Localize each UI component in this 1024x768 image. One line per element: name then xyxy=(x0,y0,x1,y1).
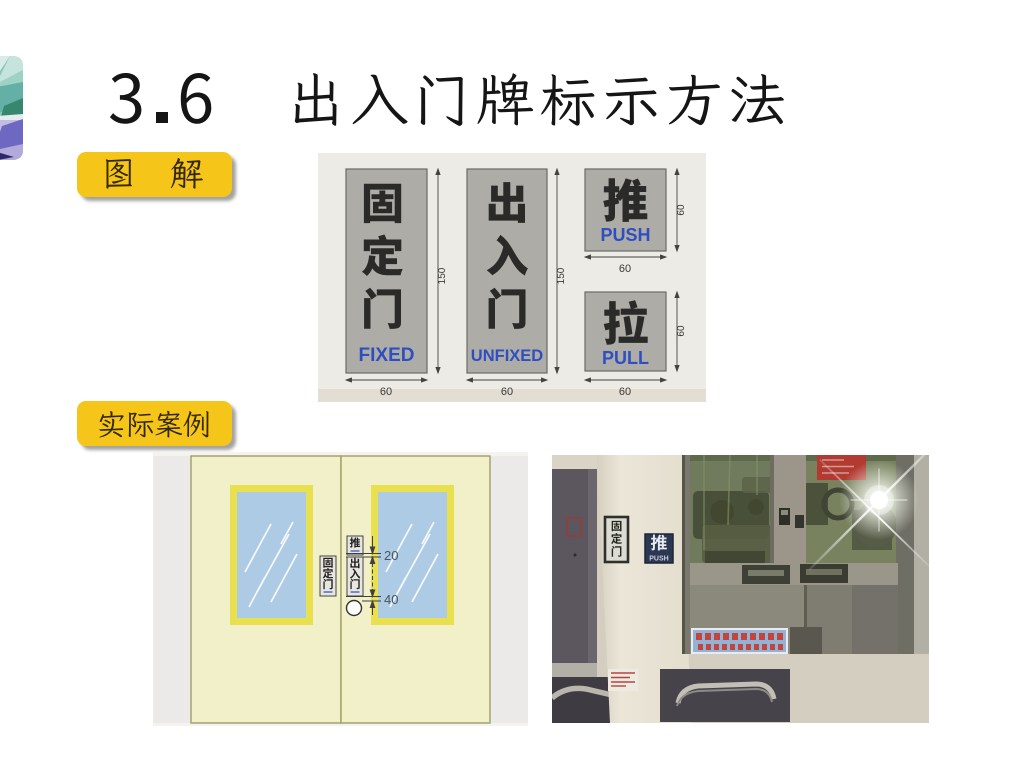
svg-text:60: 60 xyxy=(380,386,392,398)
svg-text:FIXED: FIXED xyxy=(359,345,415,366)
svg-text:60: 60 xyxy=(619,263,631,275)
svg-text:PUSH: PUSH xyxy=(600,225,650,245)
svg-text:20: 20 xyxy=(384,548,398,563)
svg-text:150: 150 xyxy=(556,267,567,284)
svg-text:UNFIXED: UNFIXED xyxy=(471,347,544,365)
svg-text:PULL: PULL xyxy=(602,348,649,368)
svg-text:60: 60 xyxy=(676,325,687,337)
svg-text:PUSH: PUSH xyxy=(649,556,668,563)
svg-text:40: 40 xyxy=(384,592,398,607)
svg-text:60: 60 xyxy=(619,386,631,398)
svg-text:150: 150 xyxy=(437,267,448,284)
svg-text:60: 60 xyxy=(676,204,687,216)
svg-text:60: 60 xyxy=(501,386,513,398)
